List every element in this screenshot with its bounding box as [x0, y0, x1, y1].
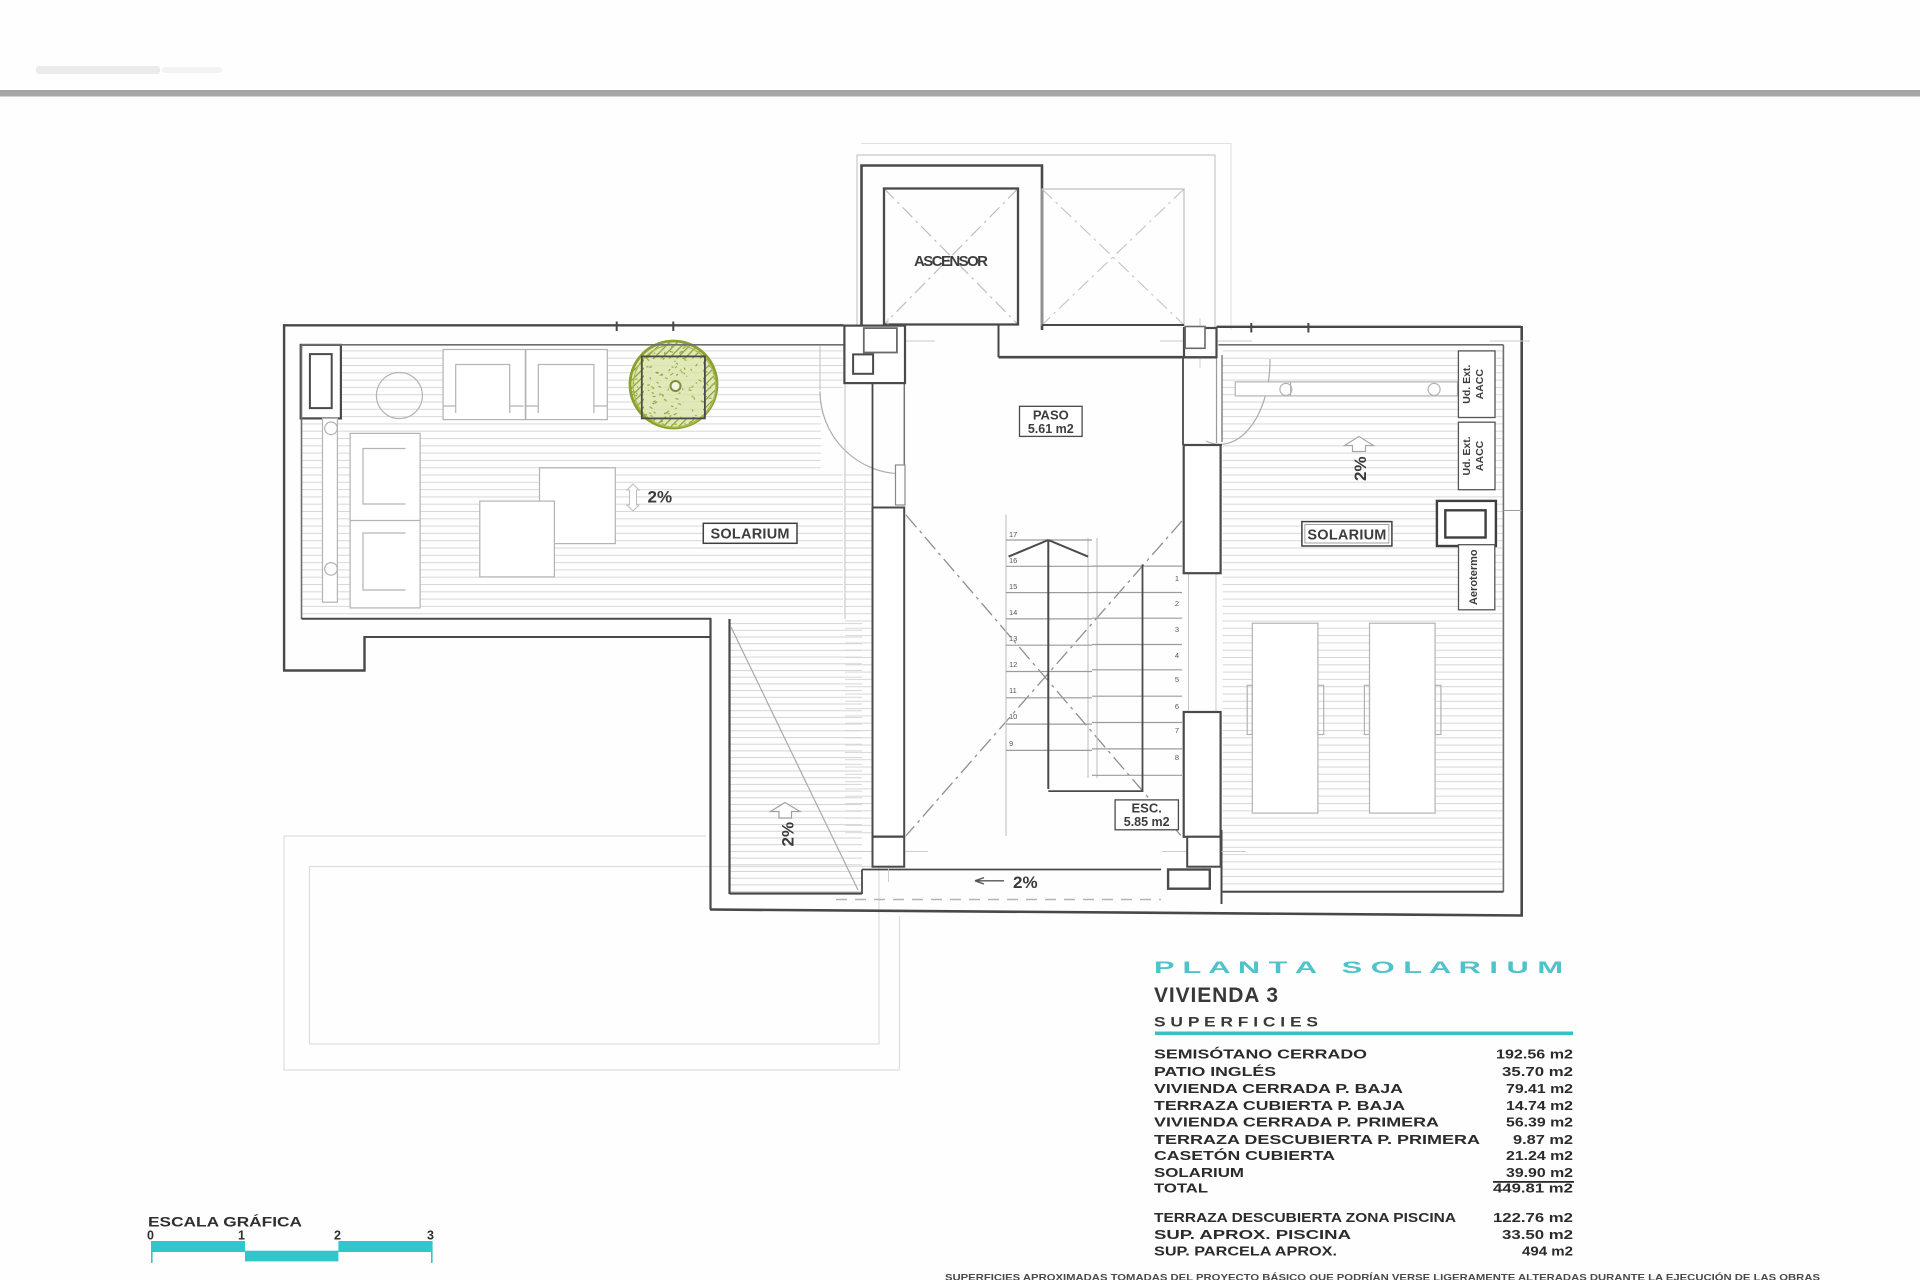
- svg-text:17: 17: [1009, 530, 1017, 539]
- svg-text:12: 12: [1009, 660, 1017, 669]
- svg-text:VIVIENDA CERRADA P. PRIMERA: VIVIENDA CERRADA P. PRIMERA: [1154, 1115, 1440, 1130]
- svg-text:TOTAL: TOTAL: [1154, 1180, 1208, 1195]
- svg-text:3: 3: [1175, 625, 1179, 634]
- svg-text:TERRAZA CUBIERTA P. BAJA: TERRAZA CUBIERTA P. BAJA: [1154, 1098, 1406, 1113]
- svg-text:7: 7: [1175, 726, 1179, 735]
- svg-text:SEMISÓTANO CERRADO: SEMISÓTANO CERRADO: [1154, 1046, 1367, 1061]
- svg-text:2: 2: [1175, 599, 1179, 608]
- svg-text:SOLARIUM: SOLARIUM: [1307, 528, 1386, 544]
- svg-text:ESC.: ESC.: [1132, 801, 1162, 816]
- svg-text:Ud. Ext.: Ud. Ext.: [1461, 365, 1473, 404]
- svg-text:494 m2: 494 m2: [1522, 1244, 1573, 1259]
- svg-text:PATIO INGLÉS: PATIO INGLÉS: [1154, 1064, 1276, 1079]
- svg-text:AACC: AACC: [1474, 440, 1486, 471]
- svg-text:8: 8: [1175, 753, 1179, 762]
- svg-text:AACC: AACC: [1474, 369, 1486, 400]
- svg-text:VIVIENDA 3: VIVIENDA 3: [1154, 984, 1278, 1007]
- svg-text:SOLARIUM: SOLARIUM: [1154, 1165, 1244, 1180]
- svg-text:CASETÓN CUBIERTA: CASETÓN CUBIERTA: [1154, 1148, 1336, 1163]
- svg-text:9: 9: [1009, 739, 1013, 748]
- svg-text:5.61 m2: 5.61 m2: [1028, 422, 1074, 436]
- svg-text:15: 15: [1009, 582, 1017, 591]
- svg-text:6: 6: [1175, 702, 1179, 711]
- svg-text:SOLARIUM: SOLARIUM: [711, 527, 790, 543]
- svg-text:2%: 2%: [779, 822, 798, 847]
- svg-text:33.50 m2: 33.50 m2: [1502, 1227, 1573, 1242]
- svg-text:1: 1: [1175, 574, 1179, 583]
- svg-text:14.74 m2: 14.74 m2: [1506, 1098, 1573, 1113]
- svg-text:3: 3: [427, 1229, 434, 1243]
- svg-text:5: 5: [1175, 675, 1179, 684]
- svg-text:VIVIENDA CERRADA P. BAJA: VIVIENDA CERRADA P. BAJA: [1154, 1081, 1404, 1096]
- svg-text:2%: 2%: [1351, 456, 1370, 481]
- svg-text:79.41 m2: 79.41 m2: [1506, 1081, 1573, 1096]
- svg-text:10: 10: [1009, 712, 1017, 721]
- svg-text:122.76 m2: 122.76 m2: [1493, 1210, 1573, 1225]
- svg-text:2%: 2%: [1013, 873, 1038, 892]
- svg-text:14: 14: [1009, 608, 1017, 617]
- svg-text:ASCENSOR: ASCENSOR: [914, 253, 988, 270]
- svg-text:35.70 m2: 35.70 m2: [1502, 1064, 1573, 1079]
- svg-text:0: 0: [147, 1229, 154, 1243]
- svg-text:TERRAZA DESCUBIERTA ZONA PISC: TERRAZA DESCUBIERTA ZONA PISCINA: [1154, 1210, 1457, 1225]
- svg-text:2%: 2%: [648, 488, 673, 507]
- svg-text:S U P E R F I C I E S: S U P E R F I C I E S: [1154, 1014, 1318, 1030]
- svg-text:TERRAZA DESCUBIERTA P. PRIMERA: TERRAZA DESCUBIERTA P. PRIMERA: [1154, 1132, 1481, 1147]
- svg-text:11: 11: [1009, 686, 1017, 695]
- svg-text:SUPERFICIES APROXIMADAS TOMADA: SUPERFICIES APROXIMADAS TOMADAS DEL PROY…: [945, 1272, 1820, 1280]
- svg-text:P L A N T A S O L A R I U M: P L A N T A S O L A R I U M: [1154, 958, 1563, 977]
- svg-text:39.90 m2: 39.90 m2: [1506, 1165, 1573, 1180]
- svg-text:56.39 m2: 56.39 m2: [1506, 1115, 1573, 1130]
- svg-text:16: 16: [1009, 556, 1017, 565]
- svg-text:SUP. PARCELA APROX.: SUP. PARCELA APROX.: [1154, 1244, 1337, 1259]
- svg-text:13: 13: [1009, 634, 1017, 643]
- svg-text:21.24 m2: 21.24 m2: [1506, 1148, 1573, 1163]
- svg-text:4: 4: [1175, 651, 1179, 660]
- svg-text:2: 2: [334, 1229, 341, 1243]
- svg-text:192.56 m2: 192.56 m2: [1496, 1046, 1573, 1061]
- svg-text:1: 1: [238, 1229, 245, 1243]
- svg-text:Aerotermo: Aerotermo: [1468, 549, 1480, 605]
- svg-text:ESCALA GRÁFICA: ESCALA GRÁFICA: [148, 1215, 302, 1230]
- svg-text:SUP. APROX. PISCINA: SUP. APROX. PISCINA: [1154, 1227, 1352, 1242]
- svg-text:9.87 m2: 9.87 m2: [1513, 1132, 1573, 1147]
- svg-text:Ud. Ext.: Ud. Ext.: [1461, 436, 1473, 475]
- svg-text:PASO: PASO: [1033, 408, 1069, 423]
- svg-text:5.85 m2: 5.85 m2: [1124, 815, 1170, 829]
